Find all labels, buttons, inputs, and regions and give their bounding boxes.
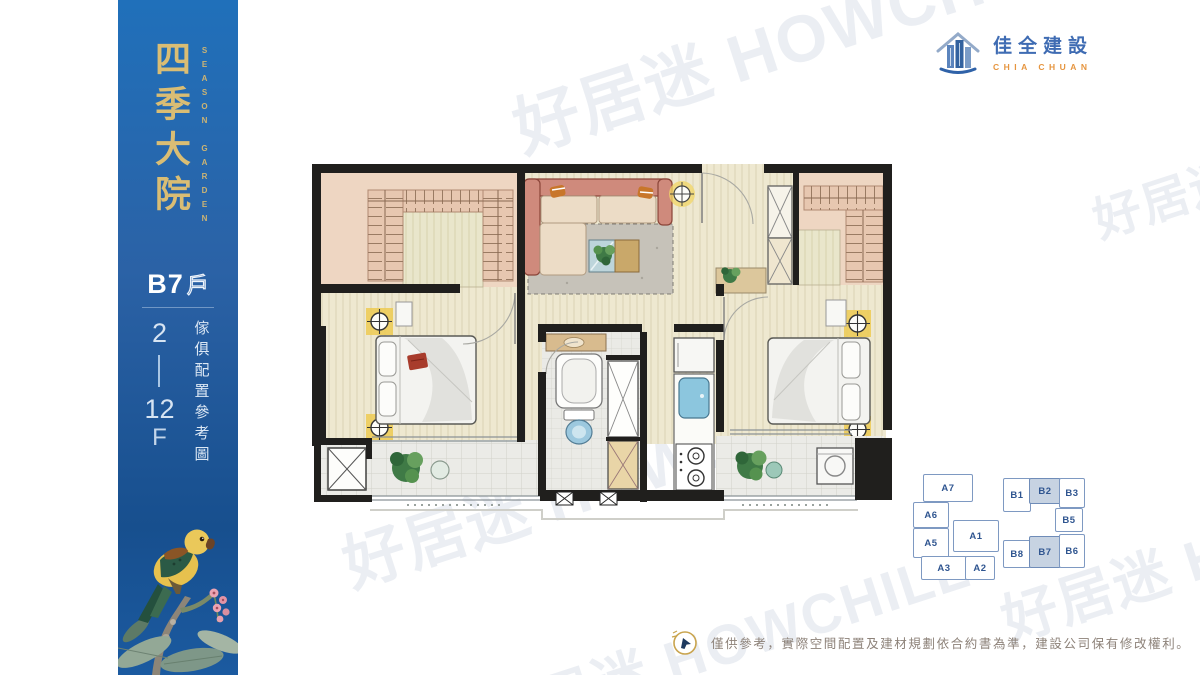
- keyplan-cell: A1: [953, 520, 999, 552]
- flowers: [210, 589, 230, 623]
- unit-suffix: 戶: [187, 273, 209, 298]
- builder-logo-icon: [933, 28, 983, 74]
- unit-code: B7: [147, 269, 184, 299]
- kitchen: [674, 338, 714, 492]
- floor-range-dash: [158, 355, 160, 387]
- disclaimer: 僅供參考，實際空間配置及建材規劃依合約書為準，建設公司保有修改權利。: [670, 628, 1190, 656]
- unit-label: B7戶: [118, 268, 238, 300]
- bathroom: [542, 330, 642, 496]
- toilet: [564, 410, 594, 444]
- living-room: [524, 179, 695, 294]
- shaft: [608, 361, 638, 489]
- keyplan-cell: B5: [1055, 508, 1083, 532]
- double-bed: [376, 336, 476, 424]
- watermark: 好居迷: [1083, 139, 1200, 252]
- bedroom2-closet: [798, 170, 883, 285]
- floor-unit: F: [152, 424, 167, 452]
- washing-machine: [817, 448, 853, 484]
- keyplan-cell: A2: [965, 556, 995, 580]
- walk-in-closet: [321, 167, 517, 287]
- double-bed: [768, 338, 870, 424]
- floor-from: 2: [152, 318, 167, 348]
- keyplan-cell: B3: [1059, 478, 1085, 508]
- bathtub: [556, 354, 602, 408]
- floor-range: 2 12 F: [144, 318, 174, 467]
- keyplan-cell: A7: [923, 474, 973, 502]
- left-banner: 四季大院 SEASON GARDEN B7戶 2 12 F 傢俱配置參考圖: [118, 0, 238, 675]
- stove: [676, 444, 712, 490]
- keyplan-cell: A6: [913, 502, 949, 528]
- keyplan-cell: B8: [1003, 540, 1031, 568]
- parrot-illustration: [118, 490, 238, 675]
- coffee-table: [589, 240, 639, 272]
- banner-divider: [142, 307, 214, 308]
- project-title: 四季大院: [144, 40, 196, 220]
- keyplan-cell: B2: [1029, 478, 1061, 504]
- balcony-left: [321, 440, 541, 496]
- keyplan-cell: B6: [1059, 534, 1085, 568]
- keyplan-cell: B1: [1003, 478, 1031, 512]
- brand-logo: 佳全建設 CHIA CHUAN: [933, 28, 1093, 74]
- nightstand-lamp: [844, 310, 871, 337]
- keyplan: A7 A6 A5 A1 A3 A2 B1 B2 B3 B5 B8 B7 B6: [903, 468, 1071, 570]
- project-subtitle: SEASON GARDEN: [200, 46, 209, 228]
- watermark: 好居迷 HOWCHILL: [500, 0, 1096, 172]
- leaves: [118, 614, 238, 675]
- keyplan-cell: A3: [921, 556, 967, 580]
- floorplan: [312, 158, 892, 523]
- floor-lamp: [669, 181, 695, 207]
- disclaimer-text: 僅供參考，實際空間配置及建材規劃依合約書為準，建設公司保有修改權利。: [711, 633, 1190, 652]
- cursor-badge-icon: [670, 628, 698, 656]
- plan-caption: 傢俱配置參考圖: [191, 320, 212, 467]
- floor-range-block: 2 12 F 傢俱配置參考圖: [118, 318, 238, 467]
- floor-to: 12: [144, 394, 174, 424]
- parrot: [138, 530, 215, 624]
- brand-name: 佳全建設: [993, 31, 1093, 58]
- brochure-page: { "watermark": { "text_cjk": "好居迷", "tex…: [0, 0, 1200, 675]
- keyplan-cell: B7: [1029, 536, 1061, 568]
- site-boundary: [370, 510, 858, 519]
- keyplan-cell: A5: [913, 528, 949, 558]
- brand-name-en: CHIA CHUAN: [993, 62, 1093, 72]
- nightstand-lamp: [366, 308, 393, 335]
